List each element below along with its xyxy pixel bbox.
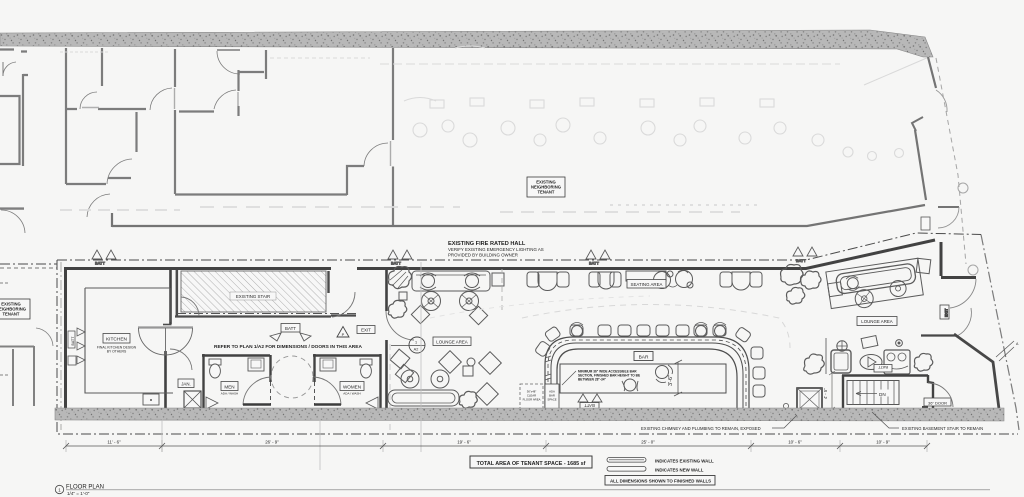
svg-text:WOMEN: WOMEN [343, 384, 361, 389]
svg-text:10' - 6": 10' - 6" [788, 440, 802, 445]
svg-text:TENANT: TENANT [538, 190, 555, 195]
svg-text:LOUNGE AREA: LOUNGE AREA [436, 339, 468, 344]
svg-text:BETWEEN 28"-34": BETWEEN 28"-34" [578, 378, 606, 382]
svg-text:4' - 5": 4' - 5" [823, 388, 828, 399]
svg-text:VERIFY EXISTING EMERGENCY LIGH: VERIFY EXISTING EMERGENCY LIGHTING AS [448, 247, 544, 252]
svg-text:LOUNGE AREA: LOUNGE AREA [861, 319, 893, 324]
svg-text:BATT: BATT [584, 403, 595, 408]
svg-text:EXIT: EXIT [361, 328, 371, 333]
svg-text:SEATING AREA: SEATING AREA [631, 282, 663, 287]
svg-text:KITCHEN: KITCHEN [106, 337, 128, 343]
svg-text:1/4" = 1'-0": 1/4" = 1'-0" [67, 491, 90, 496]
svg-text:BATT: BATT [71, 336, 75, 346]
svg-text:EXISTING CHIMNEY AND PLUMBING: EXISTING CHIMNEY AND PLUMBING TO REMAIN,… [641, 426, 761, 431]
svg-text:BATT: BATT [391, 261, 401, 266]
svg-text:DN: DN [879, 392, 886, 397]
svg-text:P: P [342, 332, 345, 337]
svg-text:11' - 6": 11' - 6" [107, 440, 121, 445]
svg-text:INDICATES EXISTING WALL: INDICATES EXISTING WALL [655, 459, 714, 464]
svg-text:BATT: BATT [796, 258, 806, 263]
svg-text:BATT: BATT [285, 326, 296, 331]
svg-text:A2: A2 [414, 348, 419, 352]
svg-text:TENANT: TENANT [3, 312, 20, 317]
svg-text:EXISTING BASEMENT STAIR TO REM: EXISTING BASEMENT STAIR TO REMAIN [902, 426, 983, 431]
svg-text:FLOOR AREA: FLOOR AREA [523, 398, 541, 402]
svg-text:INDICATES NEW WALL: INDICATES NEW WALL [655, 468, 704, 473]
svg-text:EXIT: EXIT [945, 308, 949, 317]
svg-text:SPACE: SPACE [547, 398, 556, 402]
svg-text:ALL DIMENSIONS SHOWN TO FINISH: ALL DIMENSIONS SHOWN TO FINISHED WALLS [610, 478, 711, 483]
svg-text:REFER TO PLAN 1/A2 FOR DIMENSI: REFER TO PLAN 1/A2 FOR DIMENSIONS / DOOR… [214, 344, 362, 350]
svg-text:BATT: BATT [877, 365, 887, 370]
svg-text:ADA / WASH: ADA / WASH [221, 392, 238, 396]
svg-text:TOTAL AREA OF TENANT SPACE - 1: TOTAL AREA OF TENANT SPACE - 1685 sf [477, 461, 586, 467]
svg-text:ADA / WASH: ADA / WASH [343, 392, 360, 396]
svg-text:1: 1 [415, 341, 417, 345]
svg-text:BY OTHERS: BY OTHERS [107, 350, 127, 354]
svg-text:36" DOOR: 36" DOOR [928, 400, 947, 405]
svg-text:BAR: BAR [639, 355, 649, 361]
svg-text:25' - 0": 25' - 0" [641, 440, 655, 445]
svg-text:10' - 9": 10' - 9" [876, 440, 890, 445]
svg-text:19' - 6": 19' - 6" [457, 440, 471, 445]
svg-text:3'-6": 3'-6" [668, 375, 674, 386]
svg-text:BATT: BATT [95, 261, 105, 266]
svg-text:BATT: BATT [589, 261, 599, 266]
svg-text:26' - 9": 26' - 9" [265, 440, 279, 445]
svg-text:JAN.: JAN. [181, 382, 191, 387]
svg-text:MEN: MEN [224, 384, 234, 389]
svg-text:PROVIDED BY BUILDING OWNER: PROVIDED BY BUILDING OWNER [448, 253, 518, 258]
svg-text:EXISTING STAIR: EXISTING STAIR [236, 294, 270, 299]
